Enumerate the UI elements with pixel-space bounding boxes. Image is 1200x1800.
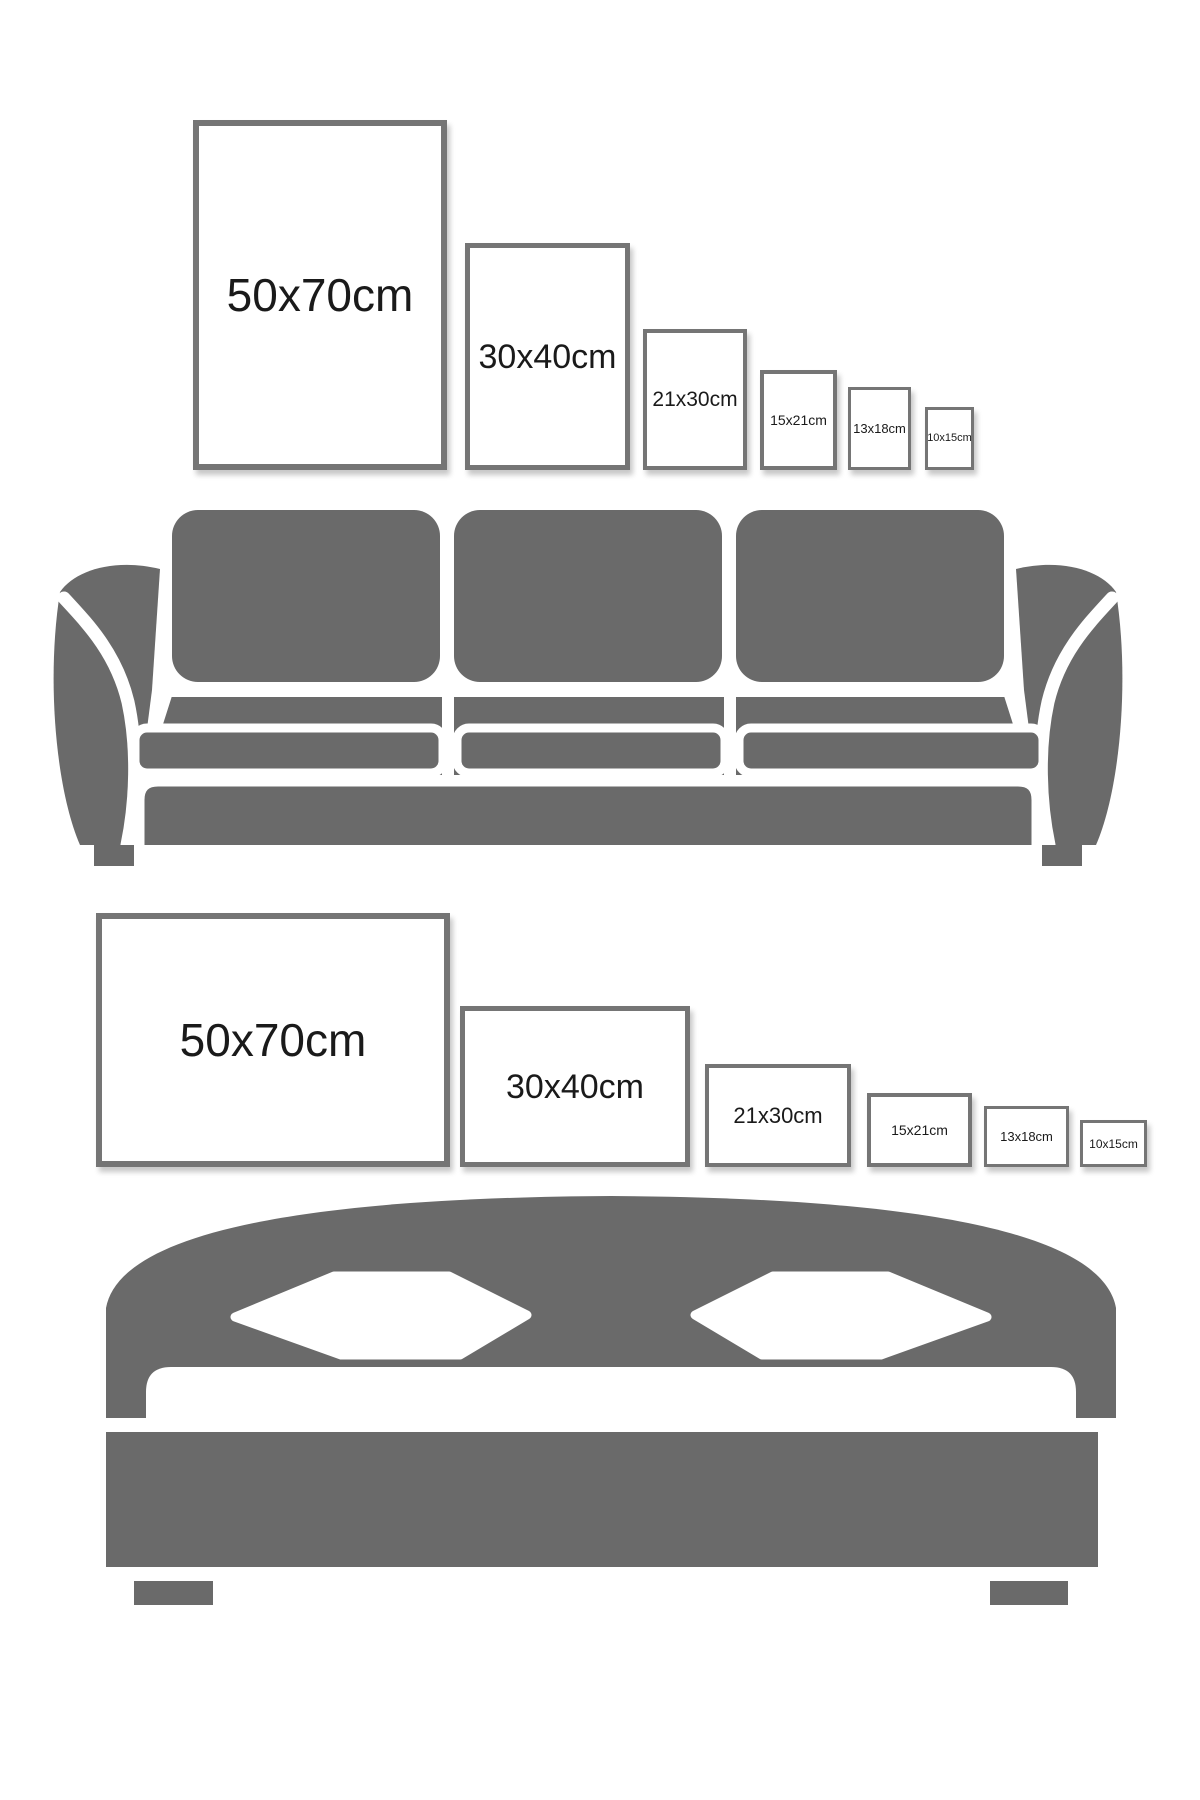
bed-foot (134, 1581, 213, 1605)
sofa-back-cushion (172, 510, 440, 682)
sofa-back-cushion (454, 510, 722, 682)
sofa-seat-cushion (457, 728, 725, 773)
bed-base (106, 1432, 1098, 1567)
sofa-illustration (54, 510, 1123, 866)
sofa-back-cushion (736, 510, 1004, 682)
sofa-foot (1042, 845, 1082, 866)
furniture-layer (0, 0, 1200, 1800)
poster-size-comparison-diagram: 50x70cm 30x40cm 21x30cm 15x21cm 13x18cm … (0, 0, 1200, 1800)
sofa-seat-cushion (739, 728, 1043, 773)
sofa-base (140, 782, 1036, 845)
sofa-foot (94, 845, 134, 866)
bed-foot (990, 1581, 1068, 1605)
bed-mattress (146, 1367, 1076, 1419)
bed-illustration (106, 1196, 1116, 1605)
sofa-seat-cushion (135, 728, 443, 773)
